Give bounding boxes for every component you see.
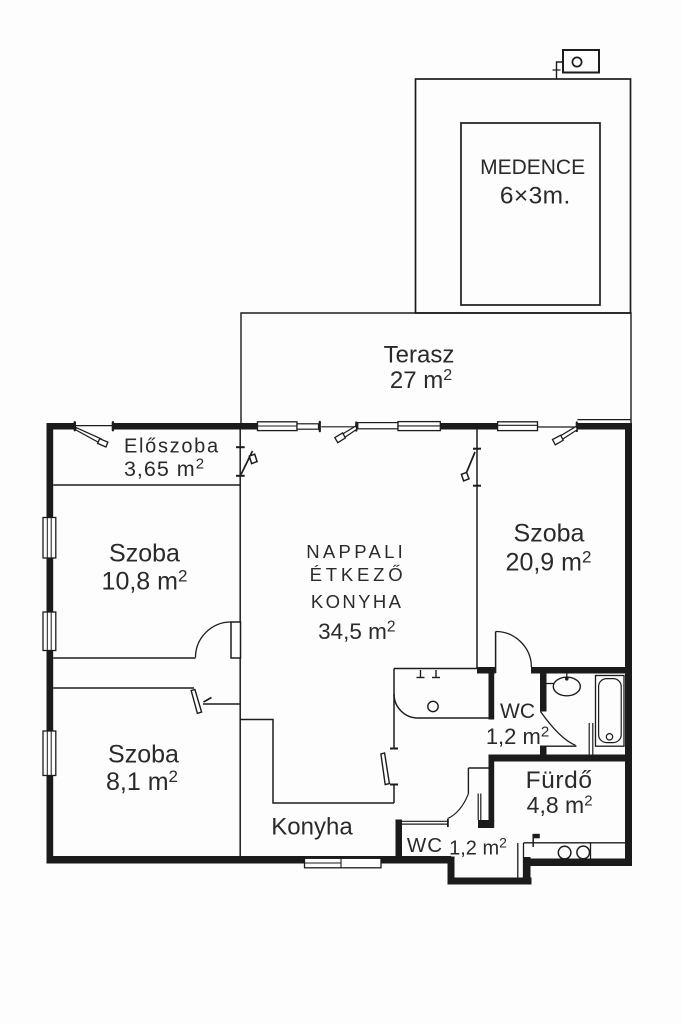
svg-text:Szoba: Szoba (108, 741, 179, 769)
svg-text:Szoba: Szoba (109, 540, 180, 568)
svg-text:Konyha: Konyha (271, 814, 353, 841)
svg-text:NAPPALI: NAPPALI (306, 541, 406, 562)
svg-text:MEDENCE: MEDENCE (480, 156, 585, 179)
svg-text:Előszoba: Előszoba (124, 436, 220, 458)
svg-text:4,8 m2: 4,8 m2 (527, 792, 593, 818)
svg-text:1,2 m2: 1,2 m2 (486, 724, 549, 750)
svg-text:1,2 m2: 1,2 m2 (449, 835, 507, 860)
svg-text:KONYHA: KONYHA (311, 591, 404, 612)
svg-text:WC: WC (407, 834, 443, 857)
svg-text:3,65 m2: 3,65 m2 (124, 456, 205, 482)
svg-text:Fürdő: Fürdő (526, 767, 593, 794)
svg-text:10,8 m2: 10,8 m2 (102, 567, 188, 596)
svg-text:27 m2: 27 m2 (390, 367, 452, 394)
svg-text:20,9 m2: 20,9 m2 (506, 548, 592, 577)
svg-text:WC: WC (500, 700, 535, 723)
svg-text:34,5 m2: 34,5 m2 (318, 619, 395, 645)
svg-text:ÉTKEZŐ: ÉTKEZŐ (310, 564, 407, 585)
svg-text:8,1 m2: 8,1 m2 (106, 767, 178, 796)
svg-text:6×3m.: 6×3m. (500, 183, 571, 210)
svg-text:Terasz: Terasz (384, 342, 455, 369)
svg-text:Szoba: Szoba (514, 520, 585, 548)
